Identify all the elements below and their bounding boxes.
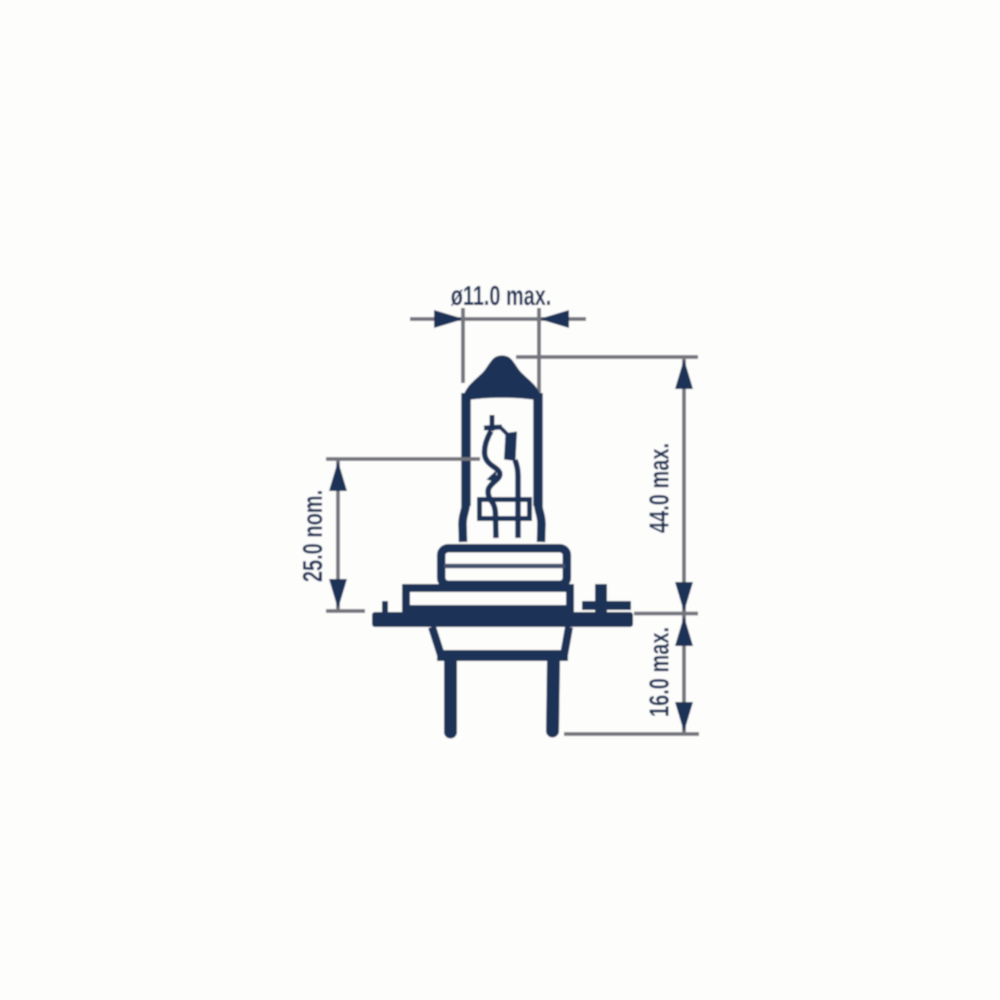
svg-text:ø11.0 max.: ø11.0 max. [451, 281, 552, 312]
svg-text:25.0 nom.: 25.0 nom. [298, 490, 329, 582]
svg-text:44.0 max.: 44.0 max. [644, 443, 675, 533]
svg-text:16.0 max.: 16.0 max. [644, 627, 675, 717]
